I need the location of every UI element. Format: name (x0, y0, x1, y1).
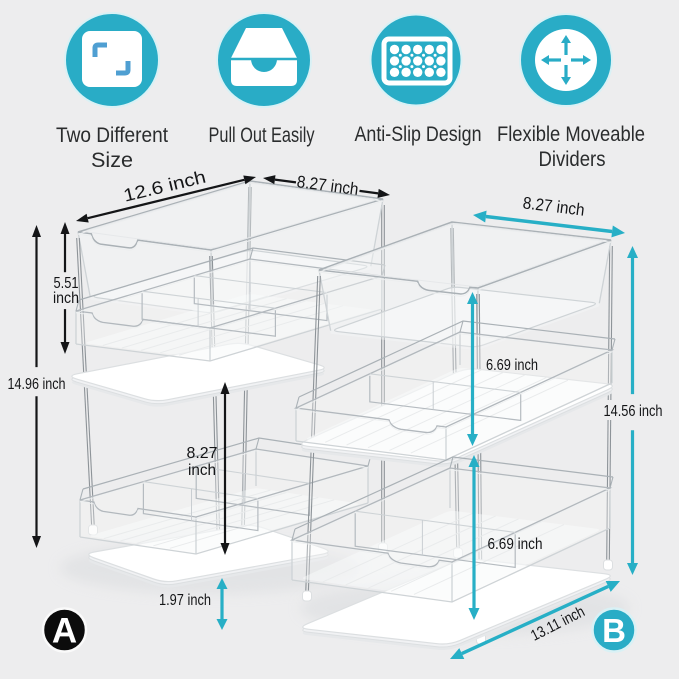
svg-text:6.69 inch: 6.69 inch (488, 536, 543, 553)
svg-text:6.69 inch: 6.69 inch (486, 357, 538, 374)
svg-text:Anti-Slip Design: Anti-Slip Design (355, 123, 482, 146)
svg-text:Pull Out Easily: Pull Out Easily (209, 124, 315, 147)
svg-text:1.97 inch: 1.97 inch (159, 592, 211, 609)
svg-text:Flexible Moveable: Flexible Moveable (497, 123, 645, 146)
svg-text:B: B (602, 612, 626, 649)
svg-text:A: A (52, 612, 77, 651)
svg-text:14.56 inch: 14.56 inch (604, 403, 663, 420)
svg-text:inch: inch (188, 462, 216, 479)
svg-text:14.96 inch: 14.96 inch (8, 376, 66, 393)
svg-text:inch: inch (53, 290, 79, 307)
svg-text:Dividers: Dividers (539, 148, 606, 171)
svg-text:Two Different: Two Different (56, 124, 168, 147)
svg-text:Size: Size (91, 149, 133, 172)
svg-text:8.27: 8.27 (187, 445, 218, 462)
